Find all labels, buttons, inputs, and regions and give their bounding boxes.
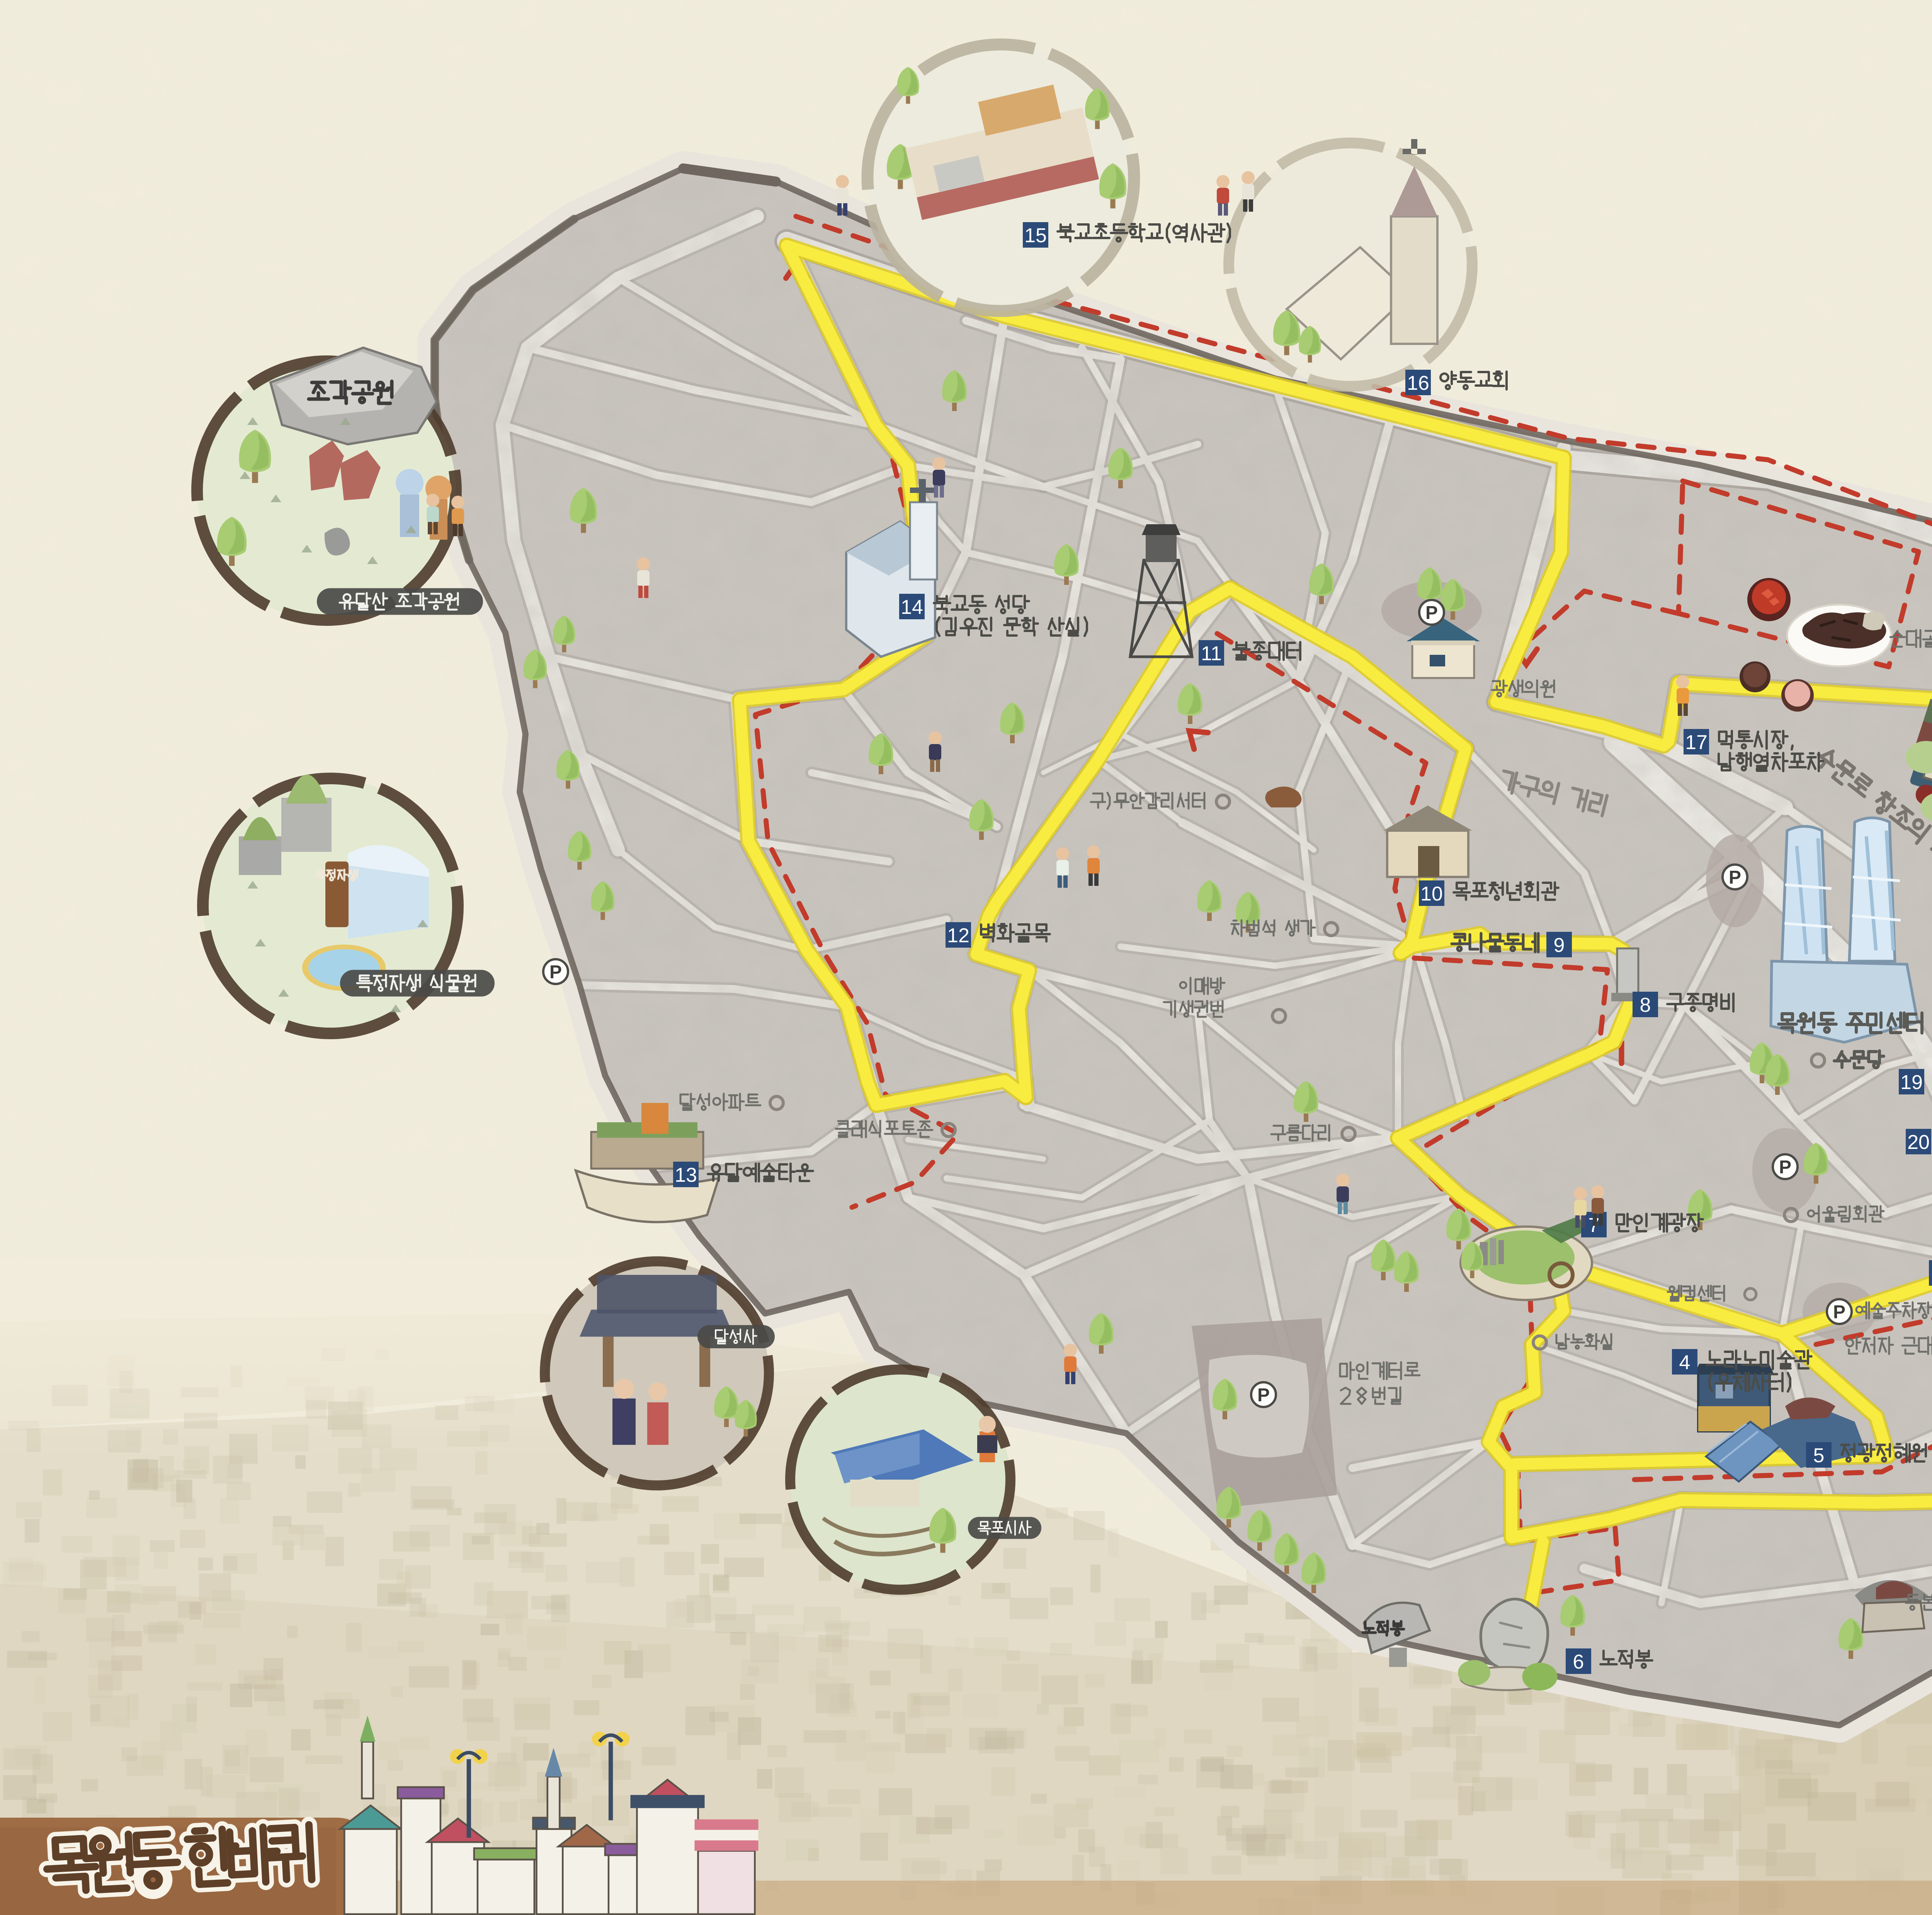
svg-text:P: P: [1729, 867, 1741, 888]
svg-text:10: 10: [1420, 883, 1443, 905]
svg-text:14: 14: [901, 596, 923, 619]
svg-text:15: 15: [1024, 224, 1047, 247]
svg-text:4: 4: [1679, 1351, 1690, 1374]
svg-text:P: P: [1833, 1302, 1845, 1322]
svg-text:17: 17: [1685, 731, 1708, 754]
svg-text:P: P: [1425, 603, 1438, 623]
svg-text:P: P: [1257, 1385, 1270, 1405]
svg-text:20: 20: [1907, 1131, 1930, 1154]
svg-text:P: P: [549, 962, 562, 982]
svg-text:8: 8: [1640, 994, 1651, 1016]
svg-text:16: 16: [1407, 372, 1429, 394]
svg-text:19: 19: [1900, 1071, 1923, 1094]
svg-text:P: P: [1779, 1157, 1791, 1178]
svg-text:11: 11: [1201, 642, 1222, 665]
svg-text:5: 5: [1813, 1444, 1825, 1467]
svg-text:6: 6: [1573, 1651, 1584, 1673]
svg-text:13: 13: [675, 1164, 697, 1186]
svg-text:9: 9: [1554, 934, 1565, 957]
svg-text:12: 12: [947, 924, 969, 947]
